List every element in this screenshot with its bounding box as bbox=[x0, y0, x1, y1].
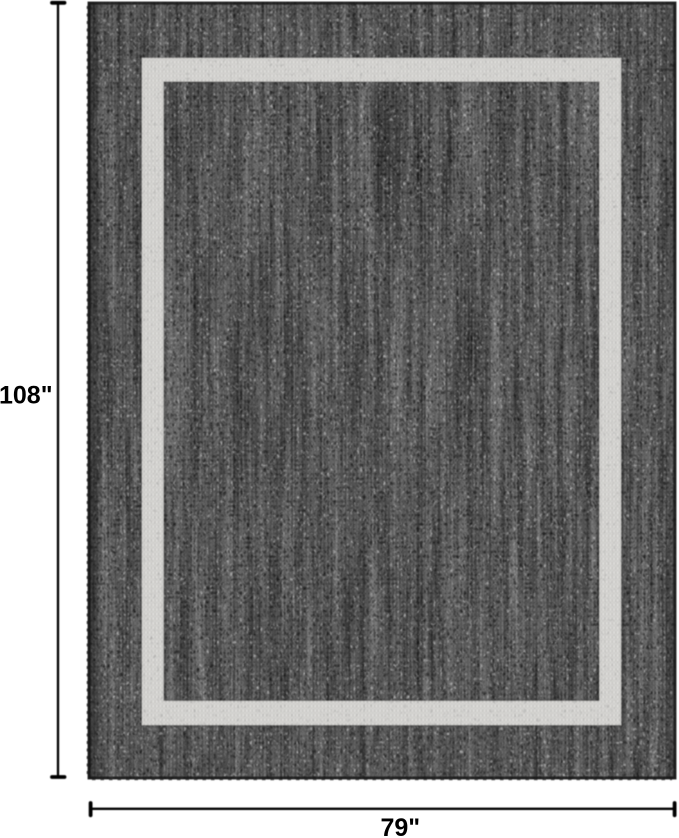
svg-text:108": 108" bbox=[0, 382, 53, 410]
svg-text:79": 79" bbox=[381, 814, 421, 838]
